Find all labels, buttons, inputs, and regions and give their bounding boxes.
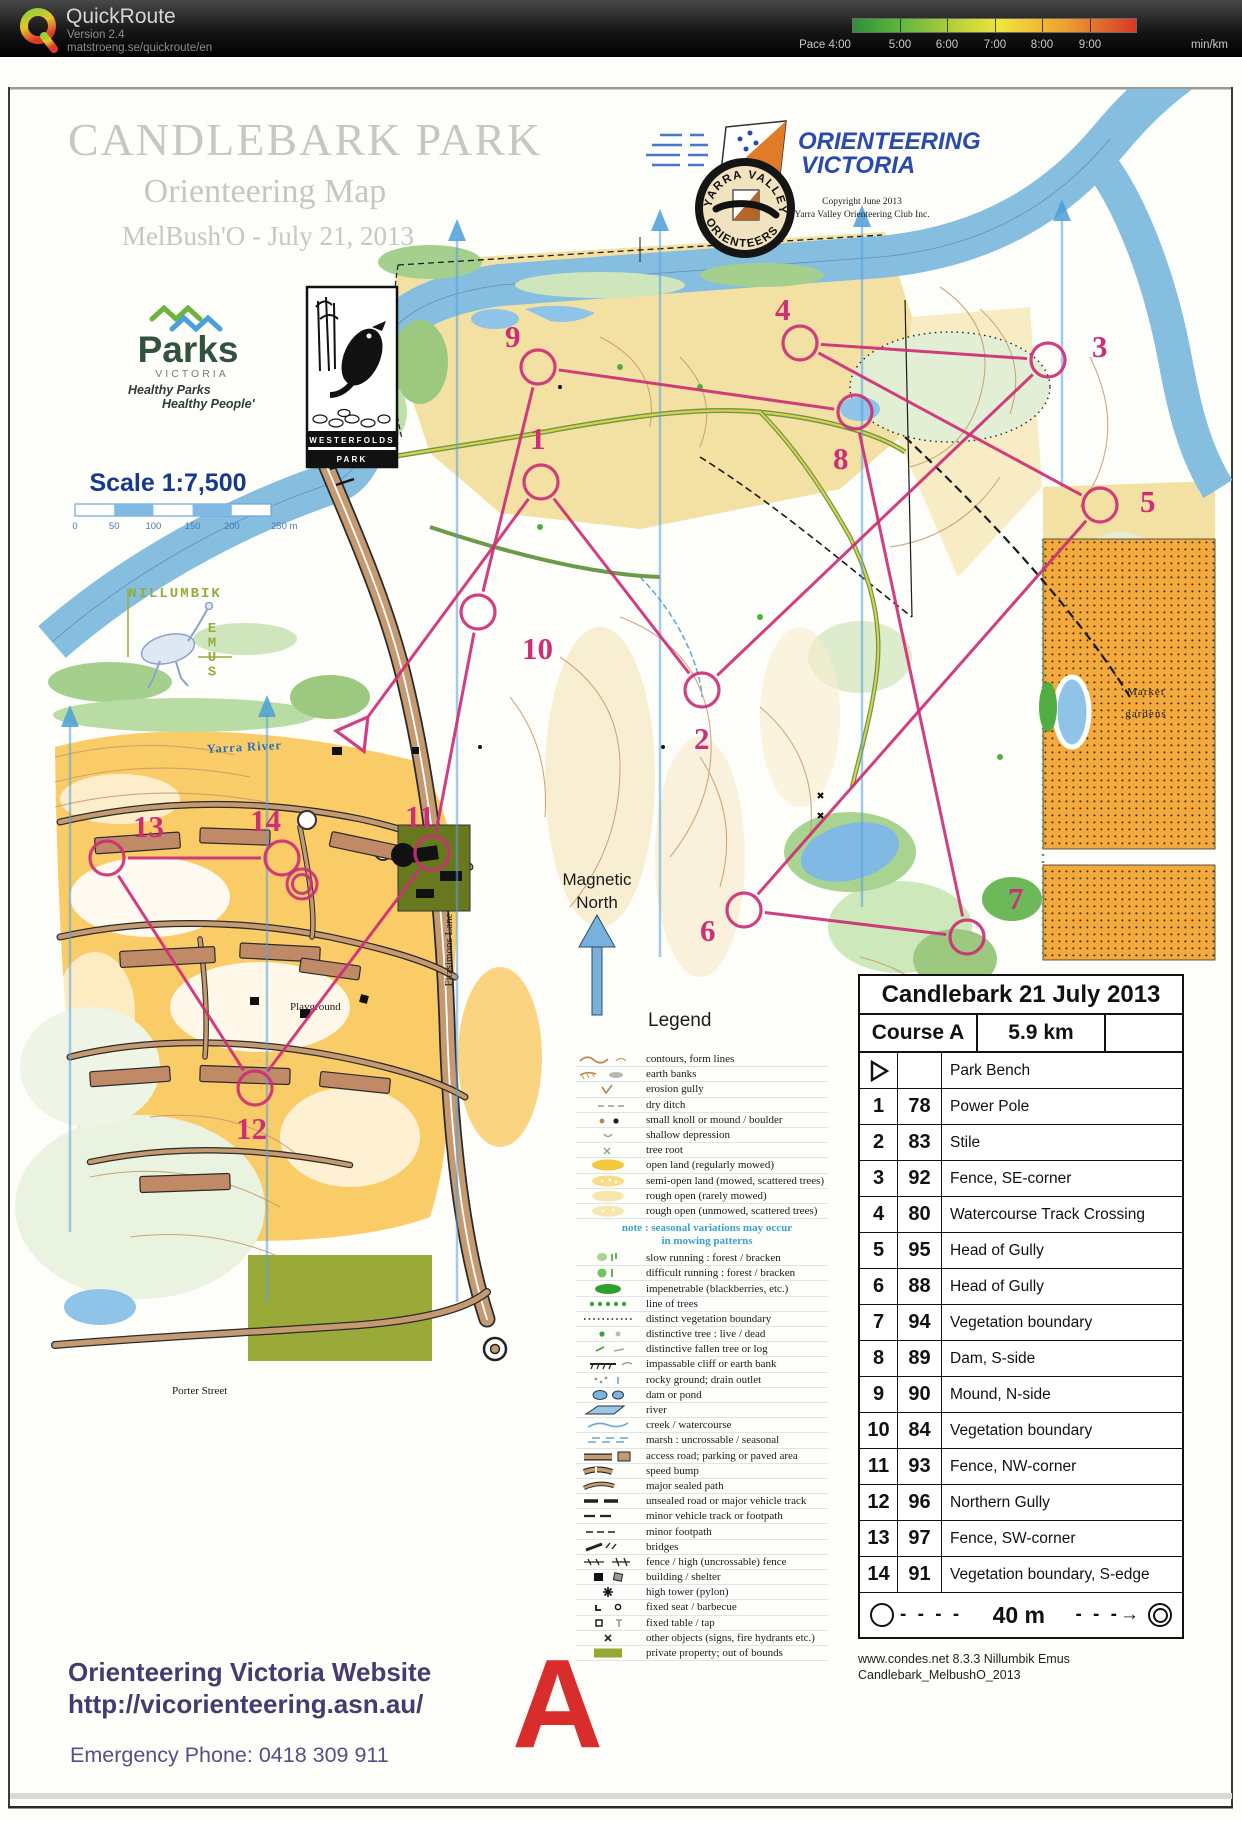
- control-code: 88: [898, 1269, 942, 1304]
- svg-text:0: 0: [72, 521, 77, 532]
- card-control-row: 990Mound, N-side: [860, 1377, 1182, 1413]
- control-code: 93: [898, 1449, 942, 1484]
- card-start-row: Park Bench: [860, 1053, 1182, 1089]
- legend-item: impenetrable (blackberries, etc.): [576, 1281, 828, 1296]
- pace-tick: [1042, 19, 1043, 32]
- card-title: Candlebark 21 July 2013: [860, 976, 1182, 1015]
- website-label: Orienteering Victoria Website: [68, 1657, 431, 1688]
- legend-item: distinctive fallen tree or log: [576, 1342, 828, 1357]
- legend-item: private property; out of bounds: [576, 1646, 828, 1661]
- control-number: 2: [860, 1125, 898, 1160]
- legend-note: note : seasonal variations may occurin m…: [576, 1219, 828, 1251]
- magnetic-north-label2: North: [576, 893, 618, 912]
- control-label-3: 3: [1092, 329, 1108, 364]
- legend-item-label: small knoll or mound / boulder: [646, 1114, 783, 1126]
- nillumbik-line2-vertical: EMUS: [208, 621, 218, 681]
- app-version: Version 2.4: [67, 29, 125, 41]
- westerfolds-park-logo: WESTERFOLDS PARK: [307, 287, 397, 467]
- page-border-left: [8, 87, 10, 1808]
- finish-dashes-right: - - -→: [1075, 1604, 1142, 1626]
- legend-item: unsealed road or major vehicle track: [576, 1494, 828, 1509]
- parks-tagline1: Healthy Parks: [128, 383, 211, 397]
- tabletap-symbol-icon: [576, 1616, 646, 1630]
- control-code: 84: [898, 1413, 942, 1448]
- control-description: Northern Gully: [942, 1485, 1182, 1520]
- treeline-symbol-icon: [576, 1297, 646, 1311]
- legend-item-label: fence / high (uncrossable) fence: [646, 1556, 787, 1568]
- page-border-bottom: [8, 1806, 1233, 1809]
- control-number: 6: [860, 1269, 898, 1304]
- pace-tick-label: 7:00: [984, 39, 1006, 51]
- fitzsimons-lane-label: Fitzsimons Lane: [443, 913, 455, 986]
- card-control-row: 1084Vegetation boundary: [860, 1413, 1182, 1449]
- control-number: 14: [860, 1557, 898, 1592]
- pace-tick-label: 9:00: [1079, 39, 1101, 51]
- legend-heading: Legend: [648, 1010, 711, 1031]
- legend-item-label: impassable cliff or earth bank: [646, 1358, 777, 1370]
- legend-item: speed bump: [576, 1464, 828, 1479]
- legend-item-label: creek / watercourse: [646, 1419, 732, 1431]
- card-control-row: 178Power Pole: [860, 1089, 1182, 1125]
- control-label-12: 12: [236, 1111, 267, 1146]
- difficult-symbol-icon: [576, 1266, 646, 1280]
- unsealed-symbol-icon: [576, 1494, 646, 1508]
- scan-artifact-line: [10, 1793, 1232, 1799]
- legend-item-label: distinctive tree : live / dead: [646, 1328, 765, 1340]
- nillumbik-line1: NILLUMBIK: [128, 586, 222, 602]
- condes-line2: Candlebark_MelbushO_2013: [858, 1667, 1070, 1683]
- legend-item: fixed seat / barbecue: [576, 1600, 828, 1615]
- creek-symbol-icon: [576, 1418, 646, 1432]
- control-label-1: 1: [530, 421, 546, 456]
- finish-double-circle-icon: [1148, 1603, 1172, 1627]
- card-control-row: 595Head of Gully: [860, 1233, 1182, 1269]
- card-control-row: 889Dam, S-side: [860, 1341, 1182, 1377]
- control-number: 5: [860, 1233, 898, 1268]
- control-number: 3: [860, 1161, 898, 1196]
- dam-symbol-icon: [576, 1388, 646, 1402]
- legend-item-label: rough open (unmowed, scattered trees): [646, 1205, 817, 1217]
- pace-tick: [995, 19, 996, 32]
- control-description: Dam, S-side: [942, 1341, 1182, 1376]
- parks-name: Parks: [138, 329, 239, 370]
- map-title: CANDLEBARK PARK: [68, 114, 542, 165]
- svg-text:200: 200: [224, 521, 240, 532]
- legend-item-label: access road; parking or paved area: [646, 1450, 798, 1462]
- legend-item-label: unsealed road or major vehicle track: [646, 1495, 806, 1507]
- legend-item: dam or pond: [576, 1388, 828, 1403]
- control-description: Mound, N-side: [942, 1377, 1182, 1412]
- legend-item-label: erosion gully: [646, 1083, 704, 1095]
- control-number: 4: [860, 1197, 898, 1232]
- minorfootpath-symbol-icon: [576, 1525, 646, 1539]
- legend-item-label: tree root: [646, 1144, 683, 1156]
- condes-line1: www.condes.net 8.3.3 Nillumbik Emus: [858, 1651, 1070, 1667]
- control-number: 13: [860, 1521, 898, 1556]
- copyright-line1: Copyright June 2013: [822, 197, 902, 207]
- legend-item: other objects (signs, fire hydrants etc.…: [576, 1631, 828, 1646]
- legend-item-label: rough open (rarely mowed): [646, 1190, 767, 1202]
- earthbank-symbol-icon: [576, 1067, 646, 1081]
- contours-symbol-icon: [576, 1052, 646, 1066]
- legend-item: contours, form lines: [576, 1052, 828, 1067]
- ditch-symbol-icon: [576, 1098, 646, 1112]
- magnetic-north-label1: Magnetic: [563, 870, 632, 889]
- svg-text:250 m: 250 m: [271, 521, 297, 532]
- legend-item: minor vehicle track or footpath: [576, 1509, 828, 1524]
- control-code: 78: [898, 1089, 942, 1124]
- semiopen-symbol-icon: [576, 1174, 646, 1188]
- card-control-row: 283Stile: [860, 1125, 1182, 1161]
- knoll-symbol-icon: [576, 1113, 646, 1127]
- open-symbol-icon: [576, 1158, 646, 1172]
- pace-tick-label: 8:00: [1031, 39, 1053, 51]
- card-control-row: 794Vegetation boundary: [860, 1305, 1182, 1341]
- control-label-2: 2: [694, 721, 710, 756]
- legend-item: semi-open land (mowed, scattered trees): [576, 1174, 828, 1189]
- pace-tick: [900, 19, 901, 32]
- map-subtitle: Orienteering Map: [144, 173, 387, 210]
- control-code: 96: [898, 1485, 942, 1520]
- control-label-7: 7: [1008, 881, 1024, 916]
- legend-item: high tower (pylon): [576, 1585, 828, 1600]
- finish-start-circle-icon: [870, 1603, 894, 1627]
- legend-item-label: major sealed path: [646, 1480, 724, 1492]
- quickroute-logo-icon: [16, 5, 62, 53]
- control-number: 10: [860, 1413, 898, 1448]
- slow-symbol-icon: [576, 1251, 646, 1265]
- emergency-phone: Emergency Phone: 0418 309 911: [70, 1743, 389, 1768]
- depression-symbol-icon: [576, 1128, 646, 1142]
- website-url[interactable]: http://vicorienteering.asn.au/: [68, 1689, 423, 1720]
- river-symbol-icon: [576, 1403, 646, 1417]
- legend-item-label: open land (regularly mowed): [646, 1159, 774, 1171]
- legend-item-label: minor vehicle track or footpath: [646, 1510, 783, 1522]
- control-description: Head of Gully: [942, 1233, 1182, 1268]
- yarra-valley-badge: YARRA VALLEY ORIENTEERS: [699, 162, 791, 254]
- legend-item-label: dam or pond: [646, 1389, 702, 1401]
- control-description: Vegetation boundary: [942, 1305, 1182, 1340]
- legend-item-label: bridges: [646, 1541, 678, 1553]
- control-description: Power Pole: [942, 1089, 1182, 1124]
- control-number: 11: [860, 1449, 898, 1484]
- page-border-top: [8, 87, 1233, 90]
- svg-text:50: 50: [109, 521, 120, 532]
- finish-dashes-left: - - - -: [900, 1604, 962, 1626]
- legend-item-label: line of trees: [646, 1298, 698, 1310]
- control-number: 8: [860, 1341, 898, 1376]
- control-code: 89: [898, 1341, 942, 1376]
- legend-item: shallow depression: [576, 1128, 828, 1143]
- pace-tick-label: 5:00: [889, 39, 911, 51]
- control-number: 9: [860, 1377, 898, 1412]
- legend-item: erosion gully: [576, 1082, 828, 1097]
- control-code: 92: [898, 1161, 942, 1196]
- control-number: 12: [860, 1485, 898, 1520]
- legend-item: building / shelter: [576, 1570, 828, 1585]
- control-description: Vegetation boundary, S-edge: [942, 1557, 1182, 1592]
- start-desc: Park Bench: [942, 1053, 1182, 1088]
- card-course-row: Course A 5.9 km: [860, 1015, 1182, 1053]
- market-gardens-label2: gardens: [1125, 708, 1166, 720]
- control-description: Stile: [942, 1125, 1182, 1160]
- control-description: Fence, SE-corner: [942, 1161, 1182, 1196]
- start-triangle-icon: [860, 1053, 898, 1088]
- legend-item-label: river: [646, 1404, 667, 1416]
- control-description: Fence, NW-corner: [942, 1449, 1182, 1484]
- condes-credit: www.condes.net 8.3.3 Nillumbik Emus Cand…: [858, 1651, 1070, 1683]
- parks-sub: VICTORIA: [155, 368, 228, 380]
- legend-item-label: dry ditch: [646, 1099, 685, 1111]
- card-control-row: 480Watercourse Track Crossing: [860, 1197, 1182, 1233]
- control-number: 1: [860, 1089, 898, 1124]
- sealedpath-symbol-icon: [576, 1479, 646, 1493]
- fence-symbol-icon: [576, 1555, 646, 1569]
- ov-logo-line2: VICTORIA: [801, 152, 915, 179]
- card-course-name: Course A: [860, 1015, 978, 1051]
- card-control-row: 1296Northern Gully: [860, 1485, 1182, 1521]
- legend-item: access road; parking or paved area: [576, 1449, 828, 1464]
- control-label-9: 9: [505, 319, 521, 354]
- pace-tick-label: Pace 4:00: [799, 39, 851, 51]
- control-code: 94: [898, 1305, 942, 1340]
- legend-item-label: difficult running : forest / bracken: [646, 1267, 795, 1279]
- cliff-symbol-icon: [576, 1357, 646, 1371]
- legend-item: rough open (rarely mowed): [576, 1189, 828, 1204]
- speedbump-symbol-icon: [576, 1464, 646, 1478]
- legend-item: major sealed path: [576, 1479, 828, 1494]
- card-course-blank: [1106, 1015, 1182, 1051]
- legend-item: minor footpath: [576, 1524, 828, 1539]
- legend-item-label: speed bump: [646, 1465, 699, 1477]
- card-control-row: 688Head of Gully: [860, 1269, 1182, 1305]
- control-label-8: 8: [833, 441, 849, 476]
- control-description: Watercourse Track Crossing: [942, 1197, 1182, 1232]
- westerfolds-line2: PARK: [337, 455, 368, 464]
- legend-item: slow running : forest / bracken: [576, 1251, 828, 1266]
- parks-tagline2: Healthy People': [162, 397, 256, 411]
- control-label-5: 5: [1140, 484, 1156, 519]
- legend-item-label: fixed seat / barbecue: [646, 1601, 737, 1613]
- svg-text:100: 100: [145, 521, 161, 532]
- legend-item: small knoll or mound / boulder: [576, 1113, 828, 1128]
- tower-symbol-icon: [576, 1585, 646, 1599]
- root-symbol-icon: [576, 1143, 646, 1157]
- control-code: 91: [898, 1557, 942, 1592]
- legend-item: open land (regularly mowed): [576, 1158, 828, 1173]
- pace-gradient-bar: [852, 18, 1137, 33]
- legend-item: impassable cliff or earth bank: [576, 1357, 828, 1372]
- control-description: Vegetation boundary: [942, 1413, 1182, 1448]
- legend-item-label: rocky ground; drain outlet: [646, 1374, 761, 1386]
- roughopen-symbol-icon: [576, 1189, 646, 1203]
- titlebar: QuickRoute Version 2.4 matstroeng.se/qui…: [0, 0, 1242, 57]
- fallentree-symbol-icon: [576, 1342, 646, 1356]
- legend-item: earth banks: [576, 1067, 828, 1082]
- legend-item-label: private property; out of bounds: [646, 1647, 783, 1659]
- legend-item-label: slow running : forest / bracken: [646, 1252, 781, 1264]
- copyright-line2: Yarra Valley Orienteering Club Inc.: [794, 210, 929, 220]
- card-finish-row: - - - - 40 m - - -→: [860, 1593, 1182, 1637]
- legend-item: fixed table / tap: [576, 1616, 828, 1631]
- legend-item-label: building / shelter: [646, 1571, 721, 1583]
- legend-item: difficult running : forest / bracken: [576, 1266, 828, 1281]
- pace-tick-label: 6:00: [936, 39, 958, 51]
- legend-item: creek / watercourse: [576, 1418, 828, 1433]
- legend-item-label: marsh : uncrossable / seasonal: [646, 1434, 779, 1446]
- card-control-row: 1193Fence, NW-corner: [860, 1449, 1182, 1485]
- legend-item-label: earth banks: [646, 1068, 696, 1080]
- map-page: CANDLEBARK PARK Orienteering Map MelBush…: [0, 57, 1242, 1821]
- legend-item-label: contours, form lines: [646, 1053, 734, 1065]
- legend-item: line of trees: [576, 1297, 828, 1312]
- legend-item: rough open (unmowed, scattered trees): [576, 1204, 828, 1219]
- minortrack-symbol-icon: [576, 1509, 646, 1523]
- control-label-4: 4: [775, 292, 791, 327]
- control-description: Fence, SW-corner: [942, 1521, 1182, 1556]
- legend-item: fence / high (uncrossable) fence: [576, 1555, 828, 1570]
- control-code: 83: [898, 1125, 942, 1160]
- pace-unit-label: min/km: [1191, 39, 1228, 51]
- control-number: 7: [860, 1305, 898, 1340]
- finish-distance: 40 m: [968, 1602, 1069, 1629]
- control-label-6: 6: [700, 913, 716, 948]
- app-url[interactable]: matstroeng.se/quickroute/en: [67, 42, 212, 54]
- pace-tick: [1090, 19, 1091, 32]
- vegboundary-symbol-icon: [576, 1312, 646, 1326]
- legend-item: tree root: [576, 1143, 828, 1158]
- card-control-row: 392Fence, SE-corner: [860, 1161, 1182, 1197]
- control-description: Head of Gully: [942, 1269, 1182, 1304]
- map-event: MelBush'O - July 21, 2013: [122, 221, 414, 251]
- card-control-row: 1397Fence, SW-corner: [860, 1521, 1182, 1557]
- legend-item-label: distinctive fallen tree or log: [646, 1343, 768, 1355]
- legend-item-label: minor footpath: [646, 1526, 712, 1538]
- disttree-symbol-icon: [576, 1327, 646, 1341]
- pace-tick: [947, 19, 948, 32]
- gully-symbol-icon: [576, 1082, 646, 1096]
- legend-item-label: distinct vegetation boundary: [646, 1313, 771, 1325]
- marsh-symbol-icon: [576, 1433, 646, 1447]
- legend-item-label: fixed table / tap: [646, 1617, 715, 1629]
- road-symbol-icon: [576, 1449, 646, 1463]
- legend-item-label: high tower (pylon): [646, 1586, 728, 1598]
- legend-item-label: semi-open land (mowed, scattered trees): [646, 1175, 824, 1187]
- impenetrable-symbol-icon: [576, 1282, 646, 1296]
- legend-item-label: shallow depression: [646, 1129, 730, 1141]
- page-border-right: [1231, 87, 1233, 1808]
- legend-item: marsh : uncrossable / seasonal: [576, 1433, 828, 1448]
- seat-symbol-icon: [576, 1600, 646, 1614]
- ov-logo-line1: ORIENTEERING: [798, 128, 981, 155]
- market-gardens-label1: Market: [1127, 686, 1165, 698]
- legend-item-label: other objects (signs, fire hydrants etc.…: [646, 1632, 815, 1644]
- control-code: 97: [898, 1521, 942, 1556]
- control-code: 95: [898, 1233, 942, 1268]
- legend-list: contours, form linesearth bankserosion g…: [576, 1052, 828, 1661]
- card-rows: Park Bench178Power Pole283Stile392Fence,…: [860, 1053, 1182, 1593]
- start-code: [898, 1053, 942, 1088]
- control-description-card: Candlebark 21 July 2013 Course A 5.9 km …: [858, 974, 1184, 1639]
- svg-text:S: S: [208, 665, 218, 681]
- legend-item: bridges: [576, 1540, 828, 1555]
- building-symbol-icon: [576, 1570, 646, 1584]
- westerfolds-line1: WESTERFOLDS: [309, 436, 395, 445]
- legend-item: distinctive tree : live / dead: [576, 1327, 828, 1342]
- rocky-symbol-icon: [576, 1373, 646, 1387]
- card-course-distance: 5.9 km: [978, 1015, 1106, 1051]
- legend-item: rocky ground; drain outlet: [576, 1373, 828, 1388]
- scale-label: Scale 1:7,500: [89, 469, 246, 497]
- control-label-11: 11: [405, 799, 434, 834]
- control-code: 80: [898, 1197, 942, 1232]
- legend-item: river: [576, 1403, 828, 1418]
- svg-text:150: 150: [185, 521, 201, 532]
- app-title: QuickRoute: [66, 5, 176, 29]
- control-label-10: 10: [522, 631, 553, 666]
- control-code: 90: [898, 1377, 942, 1412]
- control-label-13: 13: [133, 809, 164, 844]
- legend-item: dry ditch: [576, 1098, 828, 1113]
- control-label-14: 14: [250, 803, 281, 838]
- card-control-row: 1491Vegetation boundary, S-edge: [860, 1557, 1182, 1593]
- legend-item-label: impenetrable (blackberries, etc.): [646, 1283, 788, 1295]
- roughopen2-symbol-icon: [576, 1204, 646, 1218]
- course-letter: A: [512, 1641, 603, 1767]
- porter-street-label: Porter Street: [172, 1385, 227, 1397]
- legend-item: distinct vegetation boundary: [576, 1312, 828, 1327]
- bridge-symbol-icon: [576, 1540, 646, 1554]
